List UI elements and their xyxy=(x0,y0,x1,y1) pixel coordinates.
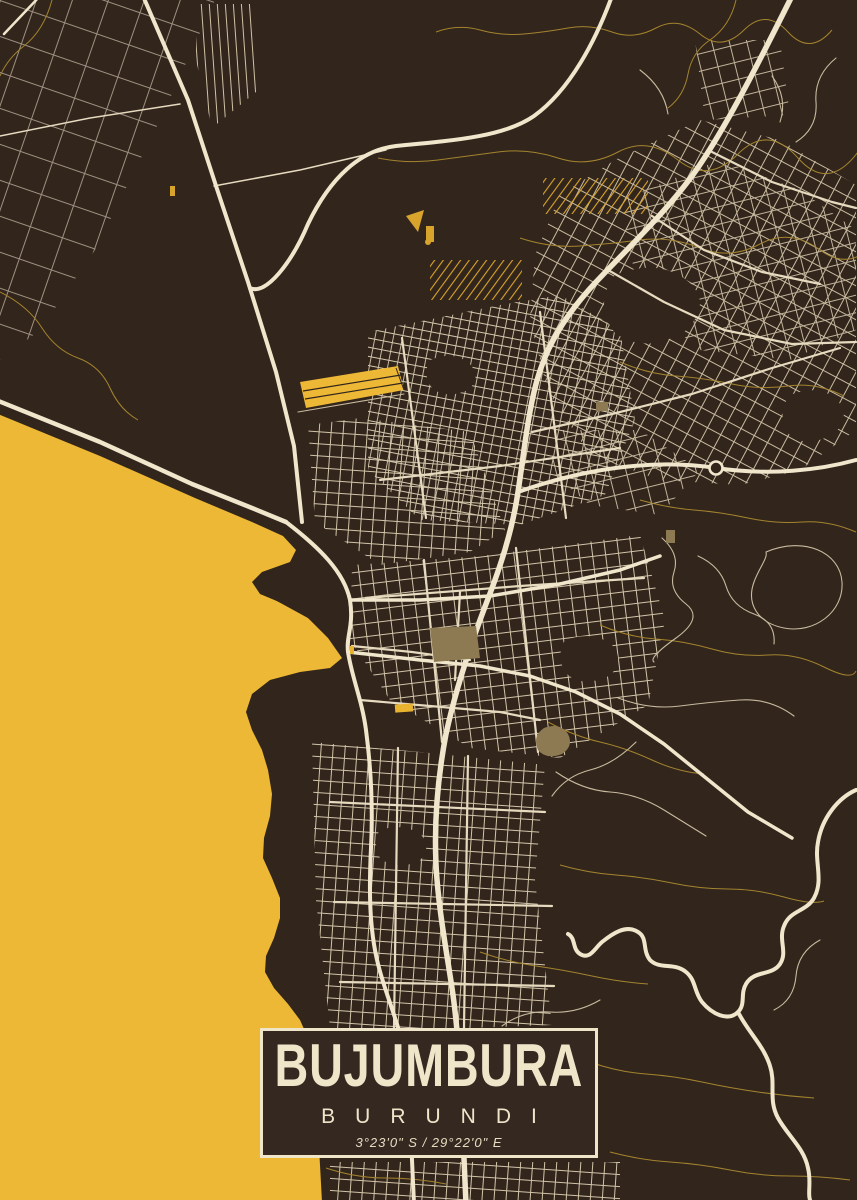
map-canvas xyxy=(0,0,857,1200)
poster-coordinates: 3°23'0" S / 29°22'0" E xyxy=(355,1135,502,1150)
roundabout xyxy=(710,462,723,475)
tan-area-3 xyxy=(666,530,675,543)
tan-area-1 xyxy=(536,726,570,756)
yellow-building-1 xyxy=(395,703,414,712)
yellow-building-5 xyxy=(425,239,431,245)
map-poster: BUJUMBURA BURUNDI 3°23'0" S / 29°22'0" E xyxy=(0,0,857,1200)
tan-area-2 xyxy=(596,402,608,411)
poster-subtitle: BURUNDI xyxy=(321,1105,557,1129)
yellow-building-2 xyxy=(350,646,354,654)
title-box: BUJUMBURA BURUNDI 3°23'0" S / 29°22'0" E xyxy=(260,1028,598,1158)
yellow-building-6 xyxy=(170,186,175,196)
port-area xyxy=(430,626,480,662)
poster-title: BUJUMBURA xyxy=(275,1036,584,1096)
